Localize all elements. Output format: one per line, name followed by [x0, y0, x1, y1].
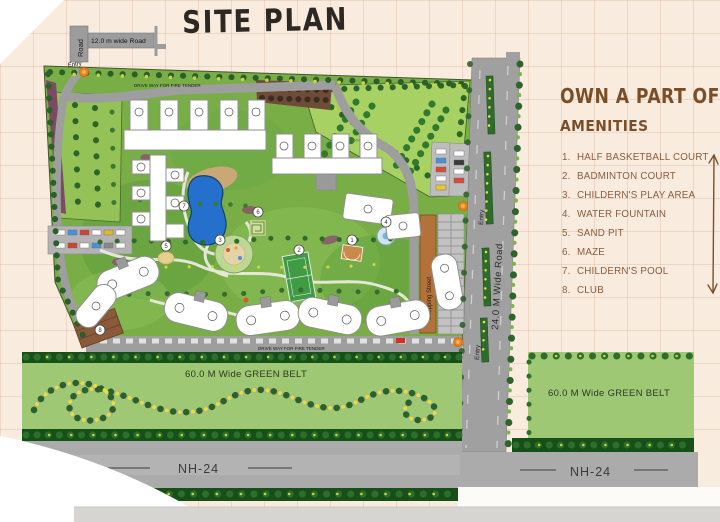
amenity-label: MAZE — [577, 247, 605, 258]
site-plan-sheet: OPEN LAND — [0, 0, 720, 522]
road-12m-vertical-label: Road — [76, 39, 85, 57]
amenity-number: 7. — [562, 266, 577, 277]
amenity-label: CHILDERN'S POOL — [577, 266, 668, 277]
green-belt-right: 60.0 M Wide GREEN BELT — [512, 352, 694, 452]
amenity-label: SAND PIT — [577, 228, 624, 239]
amenity-label: CLUB — [577, 285, 604, 296]
amenity-label: CHILDERN'S PLAY AREA — [577, 190, 695, 201]
amenity-label: WATER FOUNTAIN — [577, 209, 666, 220]
amenity-number: 6. — [562, 247, 577, 258]
sand-pit — [158, 252, 174, 264]
amenity-item: 7. CHILDERN'S POOL — [562, 266, 720, 285]
amenity-item: 2. BADMINTON COURT — [562, 171, 720, 190]
green-belt-right-label: 60.0 M Wide GREEN BELT — [548, 388, 670, 399]
maze — [250, 220, 266, 236]
amenity-item: 3. CHILDERN'S PLAY AREA — [562, 190, 720, 209]
field-parking — [430, 142, 470, 196]
amenities-list: 1. HALF BASKETBALL COURT 2. BADMINTON CO… — [562, 152, 720, 304]
panel-subheading: AMENITIES — [560, 117, 707, 135]
page-title: SITE PLAN — [182, 2, 348, 41]
amenity-item: 6. MAZE — [562, 247, 720, 266]
bottom-strip — [74, 507, 720, 522]
amenity-number: 2. — [562, 171, 577, 182]
bottom-driveway: DRIVE WAY FOR FIRE TENDER — [86, 336, 462, 352]
amenity-label: BADMINTON COURT — [577, 171, 676, 182]
amenity-item: 1. HALF BASKETBALL COURT — [562, 152, 720, 171]
amenity-item: 4. WATER FOUNTAIN — [562, 209, 720, 228]
amenities-panel: OWN A PART OF IT AMENITIES 1. HALF BASKE… — [560, 84, 720, 304]
entry-label-top: Entry — [478, 209, 486, 225]
entry-label-bottom: Entry — [474, 344, 482, 360]
amenity-item: 8. CLUB — [562, 285, 720, 304]
green-belt-left: 60.0 M Wide GREEN BELT — [22, 352, 462, 441]
fire-driveway-top-label: DRIVE WAY FOR FIRE TENDER — [134, 83, 201, 88]
amenity-number: 4. — [562, 209, 577, 220]
fire-driveway-bottom-label: DRIVE WAY FOR FIRE TENDER — [258, 346, 325, 351]
nh24-right-label: NH-24 — [570, 465, 611, 479]
panel-heading: OWN A PART OF IT — [560, 84, 698, 108]
amenity-label: HALF BASKETBALL COURT — [577, 152, 709, 163]
corner-cut-topleft — [0, 0, 64, 64]
amenity-number: 1. — [562, 152, 577, 163]
amenity-item: 5. SAND PIT — [562, 228, 720, 247]
amenity-number: 8. — [562, 285, 577, 296]
site-area: OPEN LAND — [44, 66, 473, 352]
nh24-road-right: NH-24 — [458, 452, 720, 507]
road-12m-label: 12.0 m wide Road — [91, 38, 146, 45]
amenity-number: 3. — [562, 190, 577, 201]
basketball-court — [341, 245, 363, 262]
green-belt-left-label: 60.0 M Wide GREEN BELT — [185, 369, 307, 380]
amenity-number: 5. — [562, 228, 577, 239]
nh24-left-label: NH-24 — [178, 462, 219, 476]
